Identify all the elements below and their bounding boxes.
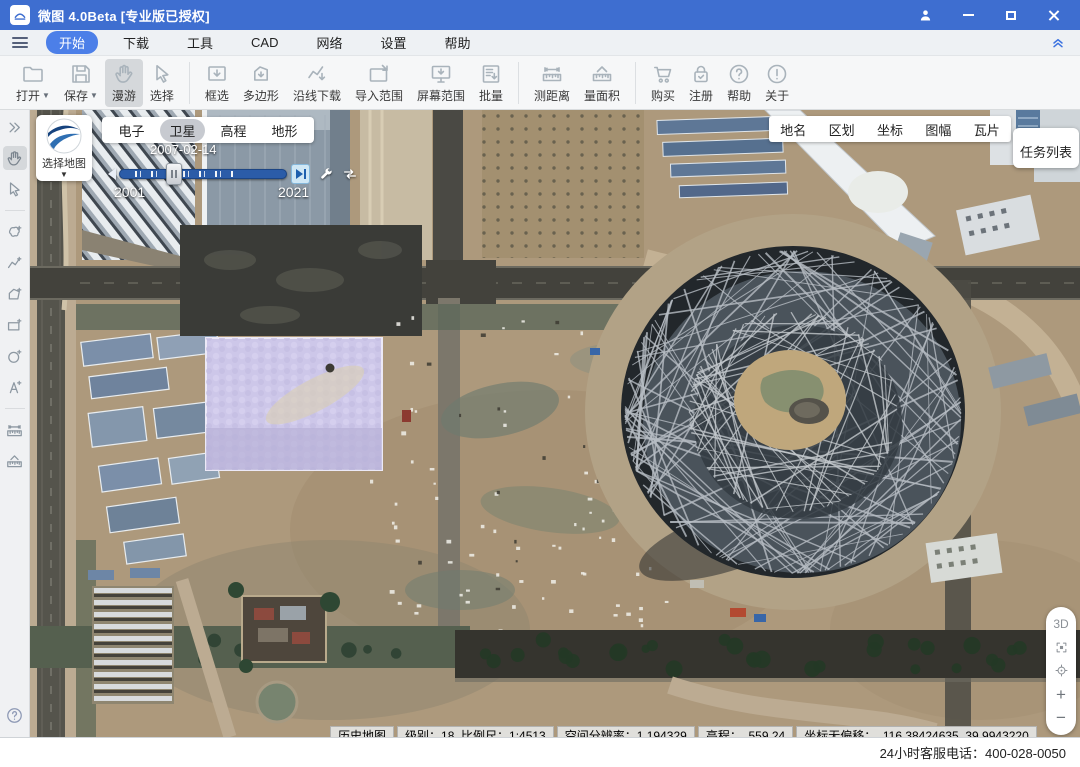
open-button[interactable]: 打开▼ [9, 59, 57, 107]
status-segment-4: 坐标无偏移： 116.38424635 39.9943220 [796, 726, 1037, 737]
timeline-current-date: 2007-02-14 [150, 142, 217, 157]
fullscreen-button[interactable] [1051, 638, 1071, 656]
info-tab-3[interactable]: 图幅 [925, 120, 951, 139]
pan-button[interactable]: 漫游 [105, 59, 143, 107]
batch-button-label: 批量 [479, 87, 503, 104]
service-hotline: 24小时客服电话：400-028-0050 [880, 743, 1066, 762]
cart-icon [651, 62, 675, 86]
info-tab-1[interactable]: 区划 [829, 120, 855, 139]
select-tool[interactable] [3, 177, 27, 201]
menu-item-4[interactable]: 网络 [304, 31, 356, 54]
timeline-slider-handle[interactable] [166, 163, 182, 185]
swap-arrows-icon[interactable] [342, 166, 358, 182]
folder-icon [21, 62, 45, 86]
layer-tab-2[interactable]: 高程 [211, 119, 255, 142]
left-tool-panel [0, 110, 30, 737]
layer-tab-1[interactable]: 卫星 [160, 119, 204, 142]
close-button[interactable] [1046, 7, 1062, 23]
status-segment-3: 高程： 559.24 [698, 726, 793, 737]
pan-button-label: 漫游 [112, 87, 136, 104]
water-cube-building [206, 338, 382, 470]
hamburger-menu-icon[interactable] [12, 37, 28, 48]
zoom-out-button[interactable]: − [1051, 709, 1071, 727]
about-circle-icon [765, 62, 789, 86]
register-button[interactable]: 注册 [682, 59, 720, 107]
polygon-button-label: 多边形 [243, 87, 279, 104]
draw-text[interactable] [3, 375, 27, 399]
map-source-button[interactable]: 选择地图 ▼ [36, 115, 92, 181]
select-button-label: 选择 [150, 87, 174, 104]
box-download-icon [205, 62, 229, 86]
toolbar-divider [518, 62, 519, 104]
about-button[interactable]: 关于 [758, 59, 796, 107]
buy-button[interactable]: 购买 [644, 59, 682, 107]
draw-circle[interactable] [3, 344, 27, 368]
menu-item-0[interactable]: 开始 [46, 31, 98, 54]
draw-freeform[interactable] [3, 220, 27, 244]
side-divider [5, 210, 25, 211]
side-help-button[interactable] [3, 703, 27, 727]
zoom-in-button[interactable]: + [1051, 686, 1071, 704]
footer-bar: 24小时客服电话：400-028-0050 [0, 737, 1080, 767]
wrench-icon[interactable] [318, 166, 334, 182]
import-extent-button-label: 导入范围 [355, 87, 403, 104]
menu-item-1[interactable]: 下载 [110, 31, 162, 54]
save-button-label: 保存▼ [64, 87, 98, 104]
screen-extent-icon [429, 62, 453, 86]
chevron-down-icon: ▼ [42, 91, 50, 100]
pan-tool[interactable] [3, 146, 27, 170]
main-toolbar: 打开▼保存▼漫游选择框选多边形沿线下载导入范围屏幕范围批量测距离量面积购买注册帮… [0, 56, 1080, 110]
toolbar-divider [635, 62, 636, 104]
measure-area-tool[interactable] [3, 449, 27, 473]
polyline-download-icon [305, 62, 329, 86]
screen-extent-button[interactable]: 屏幕范围 [410, 59, 472, 107]
menu-item-6[interactable]: 帮助 [432, 31, 484, 54]
earth-logo-icon [46, 118, 82, 154]
menu-item-3[interactable]: CAD [238, 33, 291, 52]
maximize-button[interactable] [1003, 7, 1019, 23]
along-line-download-button[interactable]: 沿线下载 [286, 59, 348, 107]
help-button[interactable]: 帮助 [720, 59, 758, 107]
batch-icon [479, 62, 503, 86]
timeline-range-end: 2021 [278, 184, 309, 200]
draw-rectangle[interactable] [3, 313, 27, 337]
layer-tab-3[interactable]: 地形 [262, 119, 306, 142]
polygon-download-icon [249, 62, 273, 86]
measure-distance-button-label: 测距离 [534, 87, 570, 104]
timeline-prev-icon[interactable] [108, 168, 116, 180]
view-control-stack: 3D+− [1046, 607, 1076, 735]
open-button-label: 打开▼ [16, 87, 50, 104]
along-line-download-button-label: 沿线下载 [293, 87, 341, 104]
map-status-bar: 历史地图级别：18 比例尺：1:4513空间分辨率：1.194329高程： 55… [330, 726, 1037, 737]
info-tab-2[interactable]: 坐标 [877, 120, 903, 139]
draw-polygon[interactable] [3, 282, 27, 306]
ruler-icon [540, 62, 564, 86]
timeline-slider[interactable] [119, 169, 287, 179]
about-button-label: 关于 [765, 87, 789, 104]
polygon-button[interactable]: 多边形 [236, 59, 286, 107]
register-button-label: 注册 [689, 87, 713, 104]
user-account-icon[interactable] [917, 7, 933, 23]
save-icon [69, 62, 93, 86]
help-button-label: 帮助 [727, 87, 751, 104]
select-button[interactable]: 选择 [143, 59, 181, 107]
timeline-next-button[interactable] [291, 164, 310, 184]
menu-bar: 开始下载工具CAD网络设置帮助 [0, 30, 1080, 56]
chevron-down-icon: ▼ [60, 172, 68, 178]
save-button[interactable]: 保存▼ [57, 59, 105, 107]
task-list-button[interactable]: 任务列表 [1013, 128, 1079, 168]
info-tabs: 地名区划坐标图幅瓦片 [769, 116, 1011, 142]
measure-area-button-label: 量面积 [584, 87, 620, 104]
status-segment-0: 历史地图 [330, 726, 394, 737]
buy-button-label: 购买 [651, 87, 675, 104]
timeline-range-start: 2001 [114, 184, 145, 200]
toolbar-divider [189, 62, 190, 104]
status-segment-1: 级别：18 比例尺：1:4513 [397, 726, 554, 737]
info-tab-4[interactable]: 瓦片 [974, 120, 1000, 139]
collapse-ribbon-icon[interactable] [1050, 34, 1068, 52]
measure-distance-button[interactable]: 测距离 [527, 59, 577, 107]
layer-tab-0[interactable]: 电子 [109, 119, 153, 142]
box-select-button-label: 框选 [205, 87, 229, 104]
import-extent-icon [367, 62, 391, 86]
collapse-panel[interactable] [3, 115, 27, 139]
minimize-button[interactable] [960, 7, 976, 23]
measure-distance-tool[interactable] [3, 418, 27, 442]
side-divider [5, 408, 25, 409]
menu-item-5[interactable]: 设置 [368, 31, 420, 54]
window-title: 微图 4.0Beta [专业版已授权] [38, 6, 210, 25]
app-logo-icon [10, 5, 30, 25]
register-icon [689, 62, 713, 86]
import-extent-button[interactable]: 导入范围 [348, 59, 410, 107]
screen-extent-button-label: 屏幕范围 [417, 87, 465, 104]
measure-area-button[interactable]: 量面积 [577, 59, 627, 107]
locate-button[interactable] [1051, 662, 1071, 680]
chevron-down-icon: ▼ [90, 91, 98, 100]
history-timeline: 2007-02-14 2001 2021 [108, 140, 368, 206]
draw-polyline[interactable] [3, 251, 27, 275]
status-segment-2: 空间分辨率：1.194329 [557, 726, 695, 737]
box-select-button[interactable]: 框选 [198, 59, 236, 107]
menu-item-2[interactable]: 工具 [174, 31, 226, 54]
info-tab-0[interactable]: 地名 [780, 120, 806, 139]
area-ruler-icon [590, 62, 614, 86]
hand-icon [112, 62, 136, 86]
map-canvas[interactable]: 选择地图 ▼ 电子卫星高程地形 2007-02-14 [30, 110, 1080, 737]
title-bar: 微图 4.0Beta [专业版已授权] [0, 0, 1080, 30]
help-circle-icon [727, 62, 751, 86]
view-3d-button[interactable]: 3D [1051, 615, 1071, 633]
batch-button[interactable]: 批量 [472, 59, 510, 107]
map-source-label: 选择地图 [42, 155, 86, 171]
cursor-icon [150, 62, 174, 86]
